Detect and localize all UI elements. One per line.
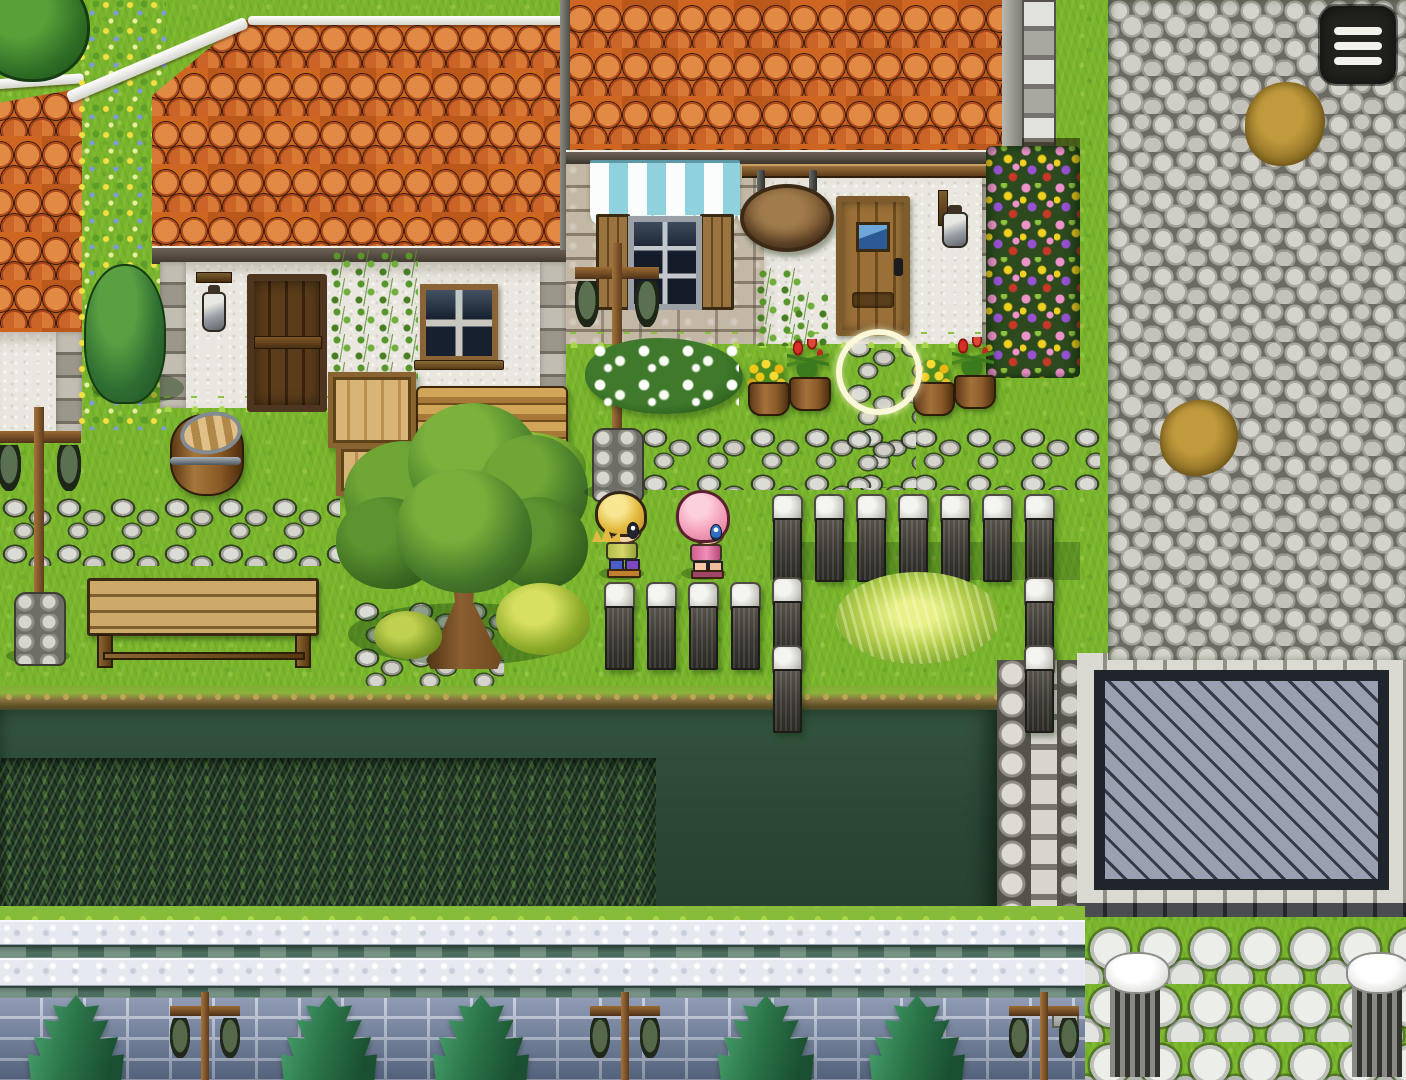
boy-eye [627,522,639,539]
big-tree [338,405,590,677]
blue-brick-wall [0,998,1085,1080]
menu-button[interactable] [1320,6,1396,84]
game-viewport[interactable] [0,0,1406,1080]
gable-strip [1002,0,1022,150]
shop-window [628,216,702,310]
canal-ledge-1 [0,920,1085,945]
girl-torso [690,544,722,562]
canal-ledge-2 [0,958,1085,986]
window-shutter-left [596,214,630,310]
boy-torso [606,542,638,560]
touch-indicator-ring [836,329,922,415]
bench-leg-right [295,634,311,668]
left-house-window-sill [414,360,504,370]
shop-awning [590,160,740,216]
cobblestone-plaza[interactable] [1108,0,1406,660]
wall-corner-block [1052,1006,1079,1028]
left-house-roof [152,20,566,264]
character-girl [676,490,730,578]
left-house-window [420,284,498,362]
flower-bed [986,146,1080,378]
courtyard-shadow-frame [1094,670,1389,890]
left-house-door [247,274,327,412]
stone-wall-strip [997,660,1079,912]
white-flower-bush [585,338,743,414]
tree-canopy [396,469,532,593]
door-window-pane [856,222,890,252]
tree-base-bush-yellow [496,583,590,655]
courtyard-base-row [1077,903,1406,917]
grass-plant-bush [836,572,1000,664]
terrace-cobbles [1085,926,1406,1080]
menu-bar-icon [1334,27,1382,35]
wall-lantern-bracket-left [196,272,232,283]
girl-shoes [691,570,724,579]
barrel [170,414,244,496]
far-left-house-roof [0,88,82,334]
canal-water-2 [0,986,1085,998]
courtyard-blue-cobbles [1105,681,1378,879]
bench-stretcher [103,652,305,660]
door-handle [894,258,903,276]
menu-bar-icon [1334,57,1382,65]
conifer-tree [84,264,166,404]
menu-bar-icon [1334,42,1382,50]
boy-hair [595,491,647,537]
wall-lantern-mid [942,212,968,248]
wall-lantern-left [202,292,226,332]
stone-fence-column [1022,0,1056,150]
hanging-shop-sign [740,184,834,252]
courtyard [1077,653,1406,907]
sign-beam [742,164,1008,178]
door-side-plant-2 [794,292,828,346]
canal-water-1 [0,945,1085,958]
door-carving [852,292,894,308]
girl-hair [676,490,730,543]
middle-house-roof [566,0,1008,152]
girl-eye [710,524,722,541]
bench-seat [87,578,319,636]
character-boy [594,490,648,578]
tree-base-bush-small [374,611,442,659]
bench-leg-left [97,634,113,668]
left-house-ridge-top [248,16,566,25]
boy-shoes [607,569,641,578]
stone-path-left [0,496,340,566]
window-shutter-right [700,214,734,310]
